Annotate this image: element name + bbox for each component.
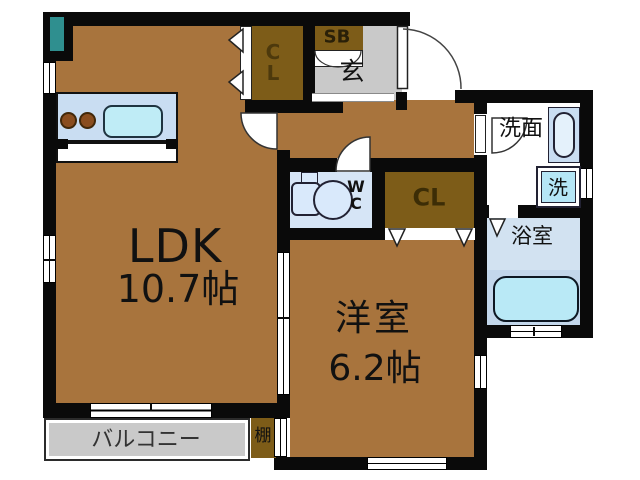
- entrance-label: 玄: [339, 59, 364, 85]
- wc-line2: C: [347, 196, 365, 213]
- front-door-arc: [403, 29, 461, 89]
- washroom-label: 洗面: [499, 117, 543, 140]
- ldk-size-label: 10.7帖: [117, 270, 240, 310]
- bathroom-folding-door: [490, 219, 505, 236]
- bathroom-label: 浴室: [511, 225, 553, 247]
- ldk-name-label: LDK: [128, 222, 222, 270]
- western-room-size-label: 6.2帖: [328, 350, 421, 388]
- closet-top-folding-door-2: [229, 71, 243, 94]
- shoe-box-label: SB: [324, 29, 351, 48]
- shelf-label: 棚: [255, 428, 272, 446]
- ldk-door-swing: [241, 113, 277, 149]
- closet-mid-label: CL: [413, 185, 446, 210]
- shoe-cabinet-arc-left: [315, 51, 338, 67]
- floor-plan: LDK 10.7帖 洋室 6.2帖 バルコニー 棚 C L SB 玄 W C C…: [0, 0, 640, 480]
- wc-door-swing: [336, 137, 370, 171]
- closet-mid-folding-door-1: [389, 229, 405, 246]
- closet-top-folding-door-1: [229, 29, 243, 52]
- western-room-name-label: 洋室: [335, 300, 413, 338]
- closet-top-label: C L: [266, 42, 281, 84]
- closet-mid-folding-door-2: [456, 229, 472, 246]
- closet-top-line1: C: [266, 42, 281, 63]
- front-door-leaf: [398, 27, 408, 89]
- closet-top-line2: L: [266, 63, 281, 84]
- balcony-label: バルコニー: [91, 428, 201, 451]
- washing-machine-label: 洗: [548, 178, 568, 199]
- wc-label: W C: [347, 179, 365, 213]
